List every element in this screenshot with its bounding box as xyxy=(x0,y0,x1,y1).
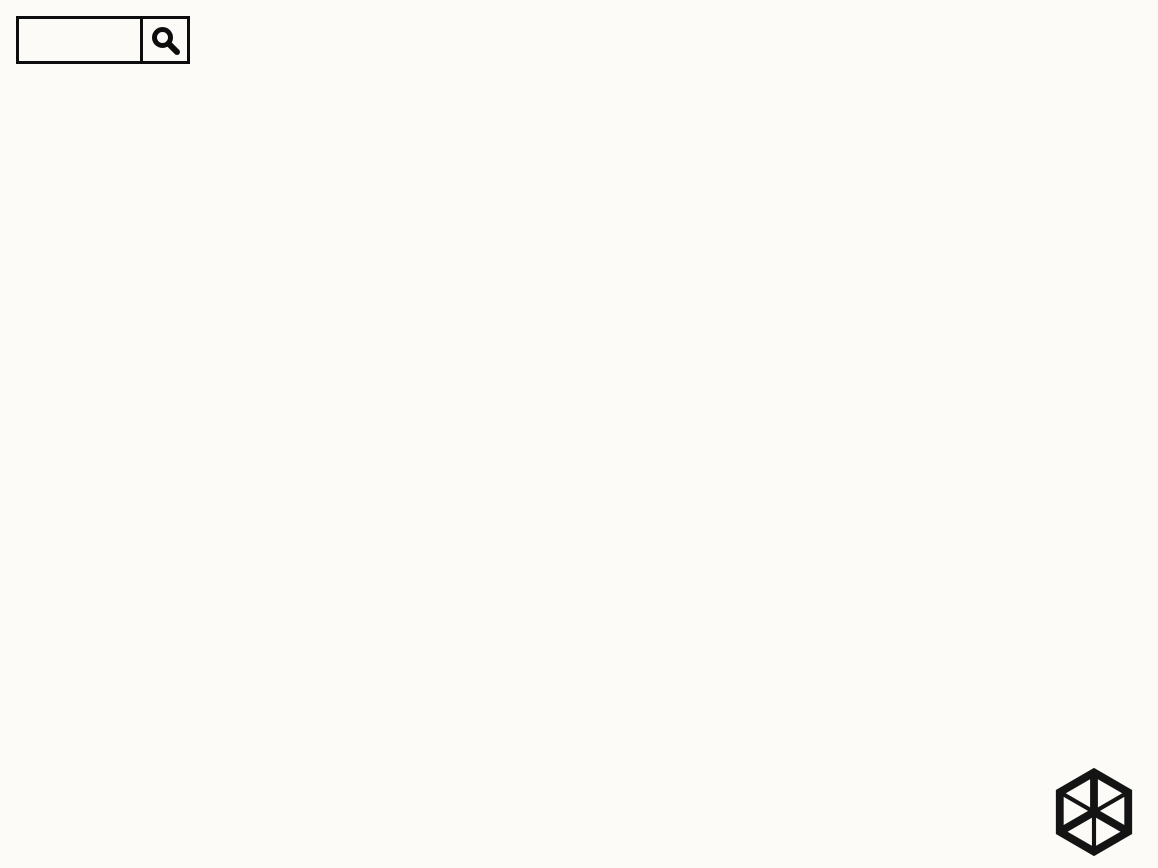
brand-search-box xyxy=(16,16,190,64)
company-logo-cube-icon xyxy=(1048,766,1140,858)
brand-search-block xyxy=(16,12,190,64)
floorplan-3d-rendering xyxy=(0,0,1158,868)
company-logo-block xyxy=(916,766,1146,860)
search-icon xyxy=(140,19,187,61)
brand-name xyxy=(19,19,140,61)
